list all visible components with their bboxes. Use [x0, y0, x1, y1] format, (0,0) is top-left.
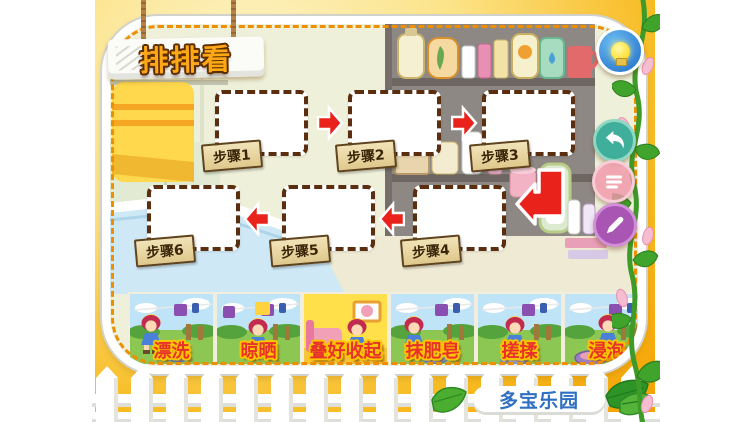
card-label: 晾晒 — [241, 337, 277, 363]
brand-name: 多宝乐园 — [499, 386, 579, 413]
card-label: 浸泡 — [589, 337, 625, 363]
step-tag-6: 步骤6 — [134, 234, 196, 267]
back-arrow-icon — [604, 131, 626, 151]
undo-button[interactable] — [593, 119, 636, 162]
step-tag-4: 步骤4 — [400, 234, 462, 267]
card-scrub[interactable]: 搓揉 — [476, 292, 563, 366]
card-soak[interactable]: 浸泡 — [563, 292, 646, 366]
light-bulb-icon — [611, 42, 630, 61]
list-icon — [604, 172, 624, 192]
step-tag-2: 步骤2 — [335, 139, 397, 172]
card-label: 漂洗 — [154, 337, 190, 363]
step-tag-1: 步骤1 — [201, 139, 263, 172]
card-label: 搓揉 — [502, 337, 538, 363]
brand-banner: 多宝乐园 — [473, 386, 605, 412]
arrow-right-icon — [451, 104, 478, 142]
card-apply-soap[interactable]: 抹肥皂 — [389, 292, 476, 366]
game-area: 步骤1 步骤2 步骤3 步骤4 步骤5 步骤6 — [95, 0, 655, 422]
card-label: 抹肥皂 — [406, 337, 460, 363]
page-title: 排排看 — [139, 36, 233, 80]
step-tag-5: 步骤5 — [269, 234, 331, 267]
card-fold-put-away[interactable]: 叠好收起 — [302, 292, 389, 366]
arrow-left-icon — [378, 200, 405, 238]
step-tag-3: 步骤3 — [469, 139, 531, 172]
hint-button[interactable] — [596, 27, 644, 75]
card-label: 叠好收起 — [310, 337, 382, 363]
card-strip: 漂洗 晾晒 — [128, 292, 646, 366]
steps-list-button[interactable] — [592, 160, 635, 203]
pencil-icon — [604, 214, 626, 236]
title-sign: 排排看 — [108, 36, 265, 79]
game-screenshot: 步骤1 步骤2 步骤3 步骤4 步骤5 步骤6 — [0, 0, 750, 422]
card-hang-dry[interactable]: 晾晒 — [215, 292, 302, 366]
draw-button[interactable] — [593, 203, 637, 247]
arrow-left-icon — [243, 200, 270, 238]
card-rinse[interactable]: 漂洗 — [128, 292, 215, 366]
arrow-right-icon — [317, 104, 344, 142]
arrow-bend-down-left-icon — [514, 168, 572, 232]
